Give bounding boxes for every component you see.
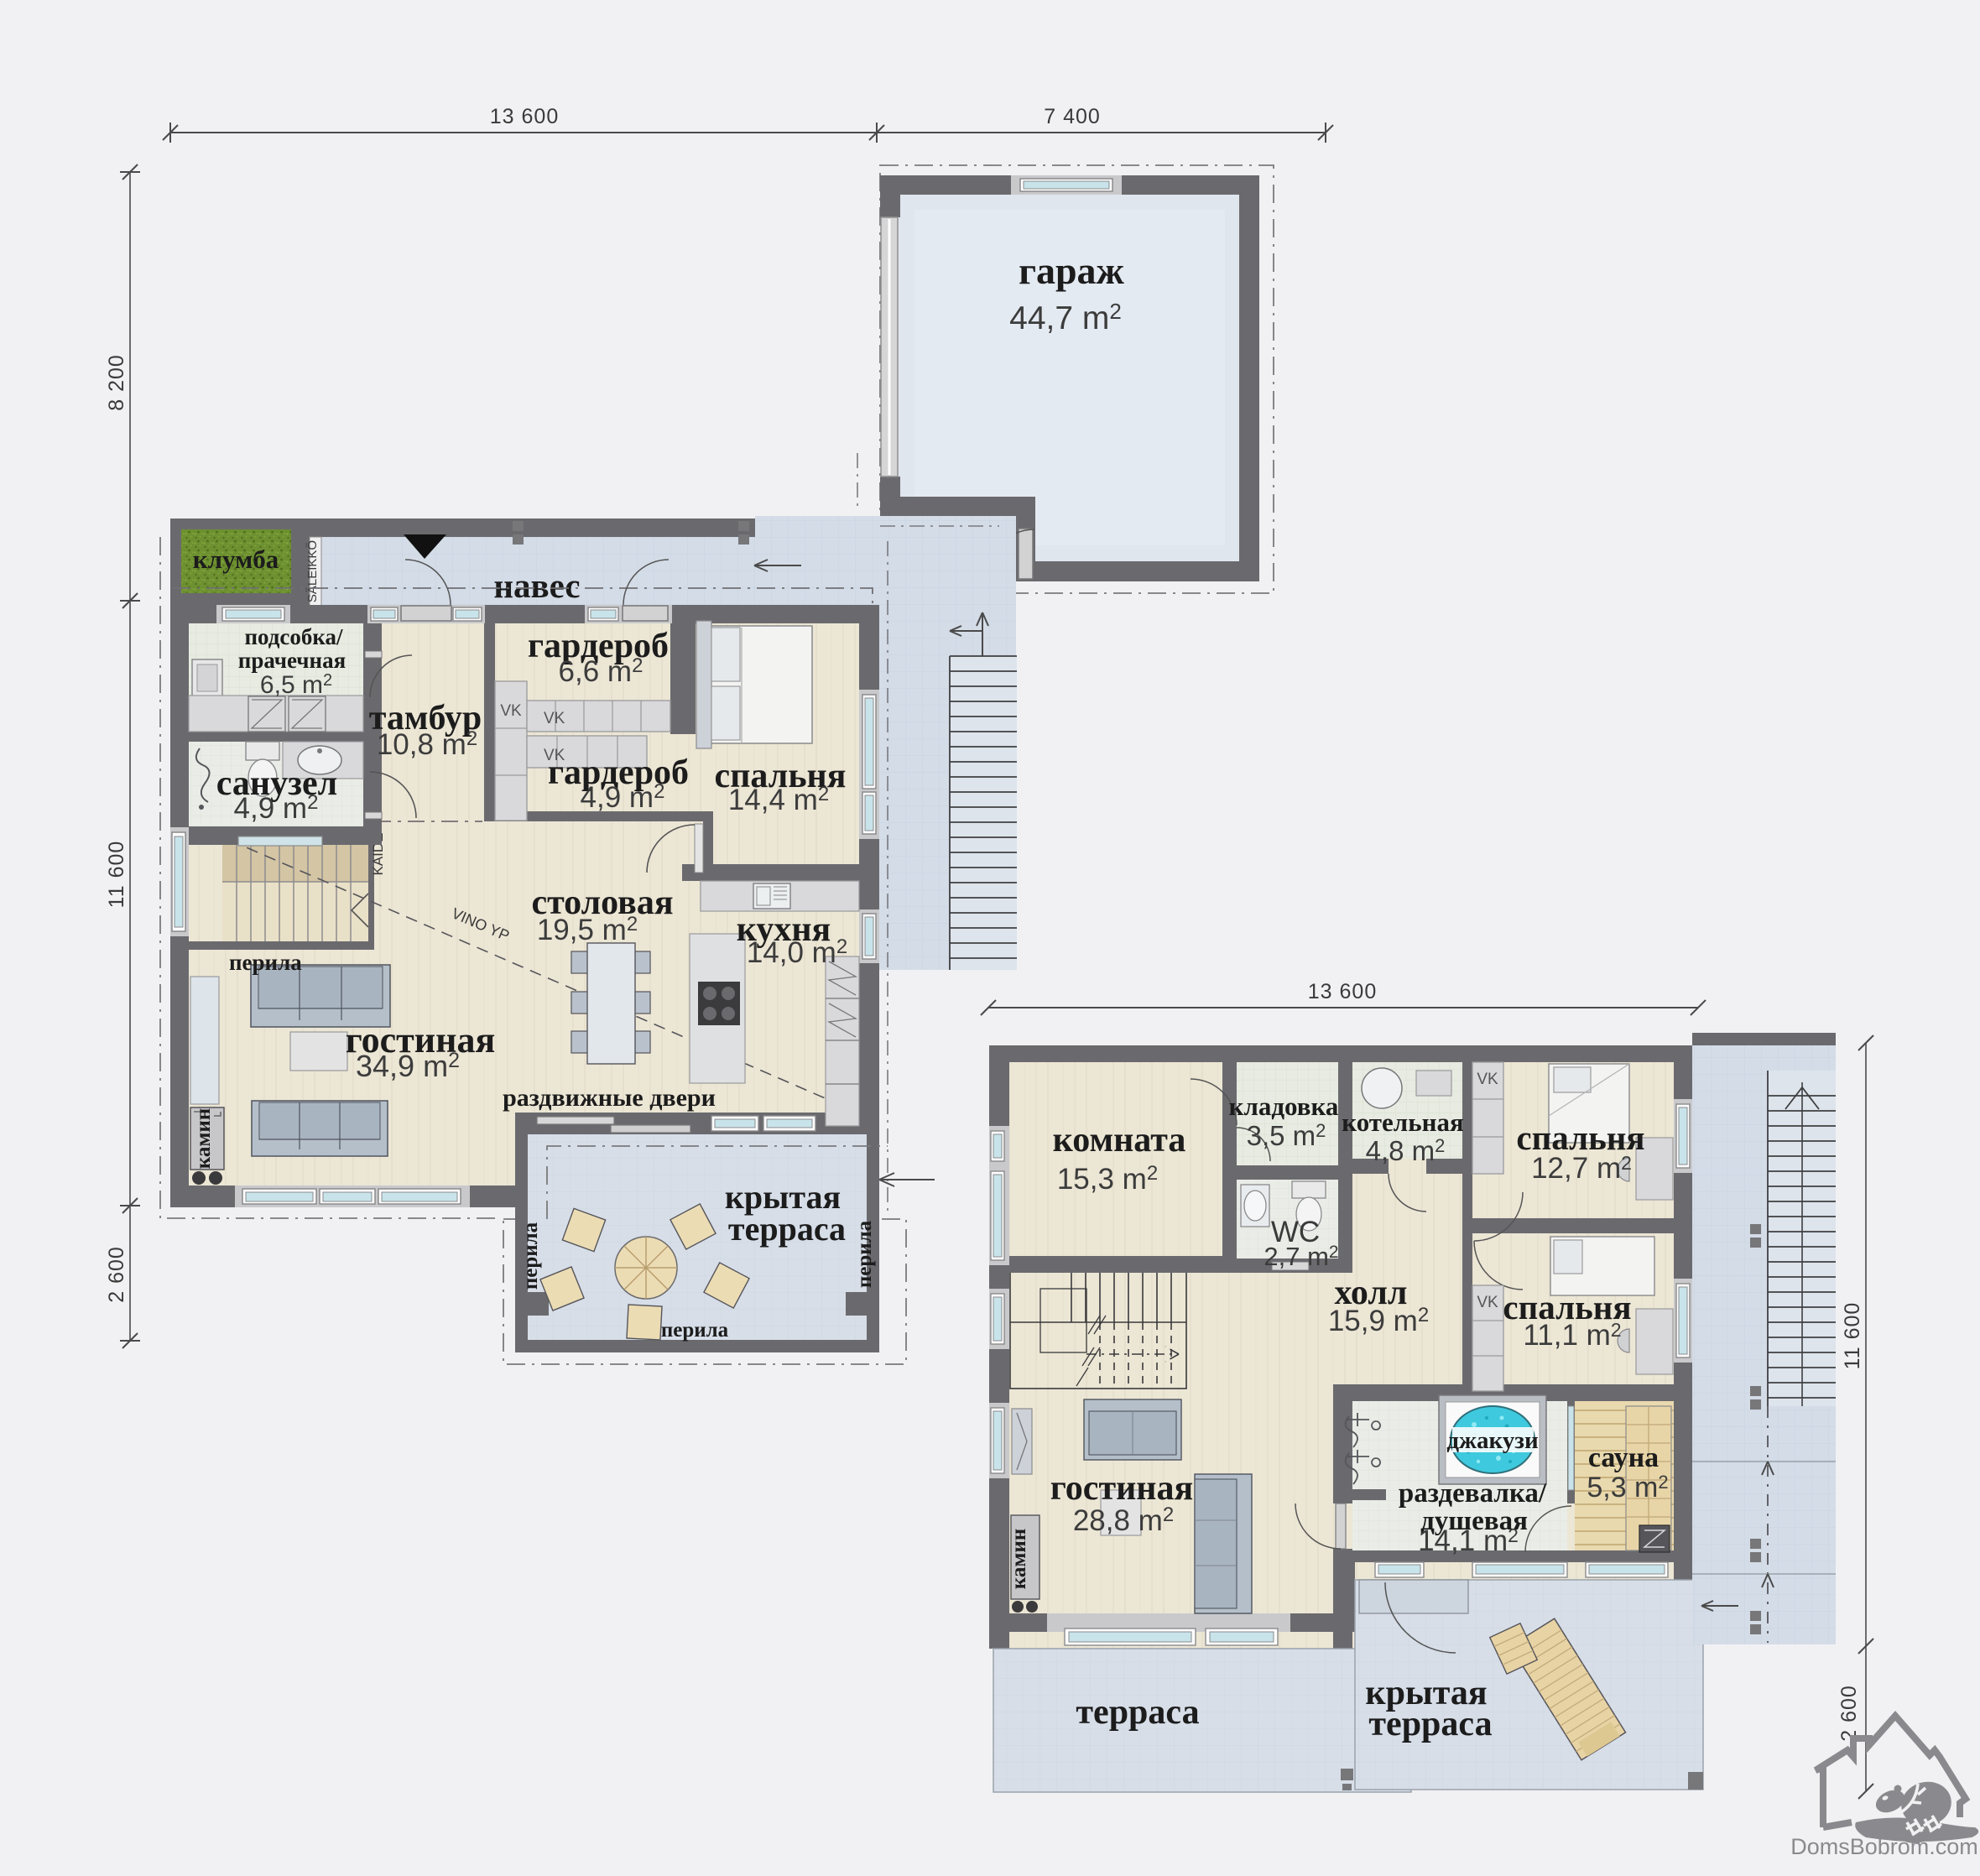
- svg-text:джакузи: джакузи: [1446, 1427, 1538, 1454]
- svg-text:перила: перила: [661, 1319, 729, 1342]
- svg-text:11 600: 11 600: [105, 841, 128, 909]
- svg-text:комната: комната: [1053, 1121, 1186, 1159]
- svg-text:4,9 m2: 4,9 m2: [581, 780, 665, 814]
- svg-text:перила: перила: [853, 1220, 876, 1288]
- svg-text:перила: перила: [519, 1222, 542, 1290]
- svg-text:терраса: терраса: [728, 1210, 846, 1248]
- svg-text:камин: камин: [192, 1108, 215, 1169]
- svg-text:15,9 m2: 15,9 m2: [1328, 1304, 1429, 1337]
- svg-text:2 600: 2 600: [105, 1246, 128, 1303]
- svg-text:2,7 m2: 2,7 m2: [1264, 1242, 1338, 1271]
- svg-text:терраса: терраса: [1076, 1693, 1199, 1732]
- svg-text:4,8 m2: 4,8 m2: [1366, 1135, 1446, 1166]
- svg-text:VK: VK: [1477, 1294, 1498, 1311]
- svg-text:11 600: 11 600: [1841, 1302, 1864, 1370]
- svg-text:14,0 m2: 14,0 m2: [747, 935, 847, 969]
- svg-text:11,1 m2: 11,1 m2: [1523, 1319, 1621, 1352]
- svg-text:клумба: клумба: [193, 545, 279, 574]
- svg-text:раздевалка/: раздевалка/: [1399, 1478, 1547, 1509]
- svg-text:прачечная: прачечная: [238, 648, 346, 673]
- svg-text:гостиная: гостиная: [1050, 1469, 1193, 1508]
- svg-text:DomsBobrom.com: DomsBobrom.com: [1790, 1834, 1978, 1859]
- svg-text:13 600: 13 600: [490, 105, 559, 128]
- svg-text:8 200: 8 200: [105, 354, 128, 411]
- svg-text:12,7 m2: 12,7 m2: [1531, 1152, 1632, 1185]
- svg-text:6,6 m2: 6,6 m2: [559, 654, 643, 688]
- svg-text:камин: камин: [1008, 1529, 1030, 1589]
- svg-text:19,5 m2: 19,5 m2: [537, 913, 638, 946]
- svg-text:VK: VK: [544, 710, 565, 727]
- svg-text:3,5 m2: 3,5 m2: [1247, 1120, 1326, 1151]
- svg-text:кладовка: кладовка: [1229, 1092, 1339, 1121]
- svg-text:перила: перила: [229, 950, 302, 975]
- svg-text:подсобка/: подсобка/: [244, 624, 343, 649]
- svg-text:котельная: котельная: [1342, 1107, 1463, 1137]
- svg-text:навес: навес: [493, 566, 580, 605]
- svg-text:SÄLEIKKÖ: SÄLEIKKÖ: [305, 540, 320, 602]
- svg-text:VK: VK: [1477, 1071, 1498, 1088]
- svg-text:сауна: сауна: [1588, 1442, 1659, 1473]
- svg-text:28,8 m2: 28,8 m2: [1073, 1503, 1174, 1537]
- svg-text:5,3 m2: 5,3 m2: [1587, 1472, 1668, 1503]
- svg-text:10,8 m2: 10,8 m2: [377, 727, 477, 761]
- svg-text:44,7 m2: 44,7 m2: [1009, 299, 1122, 336]
- svg-text:13 600: 13 600: [1308, 980, 1377, 1003]
- svg-text:7 400: 7 400: [1044, 105, 1101, 128]
- svg-text:34,9 m2: 34,9 m2: [356, 1049, 460, 1083]
- svg-text:раздвижные двери: раздвижные двери: [503, 1084, 716, 1112]
- svg-text:14,1 m2: 14,1 m2: [1418, 1524, 1519, 1557]
- svg-text:VK: VK: [500, 702, 522, 720]
- svg-text:терраса: терраса: [1368, 1705, 1492, 1743]
- svg-text:15,3 m2: 15,3 m2: [1057, 1162, 1158, 1196]
- svg-text:гараж: гараж: [1019, 249, 1124, 292]
- svg-text:2 600: 2 600: [1837, 1685, 1861, 1742]
- svg-text:4,9 m2: 4,9 m2: [234, 791, 319, 825]
- svg-text:6,5 m2: 6,5 m2: [260, 671, 332, 699]
- svg-text:14,4 m2: 14,4 m2: [728, 783, 829, 816]
